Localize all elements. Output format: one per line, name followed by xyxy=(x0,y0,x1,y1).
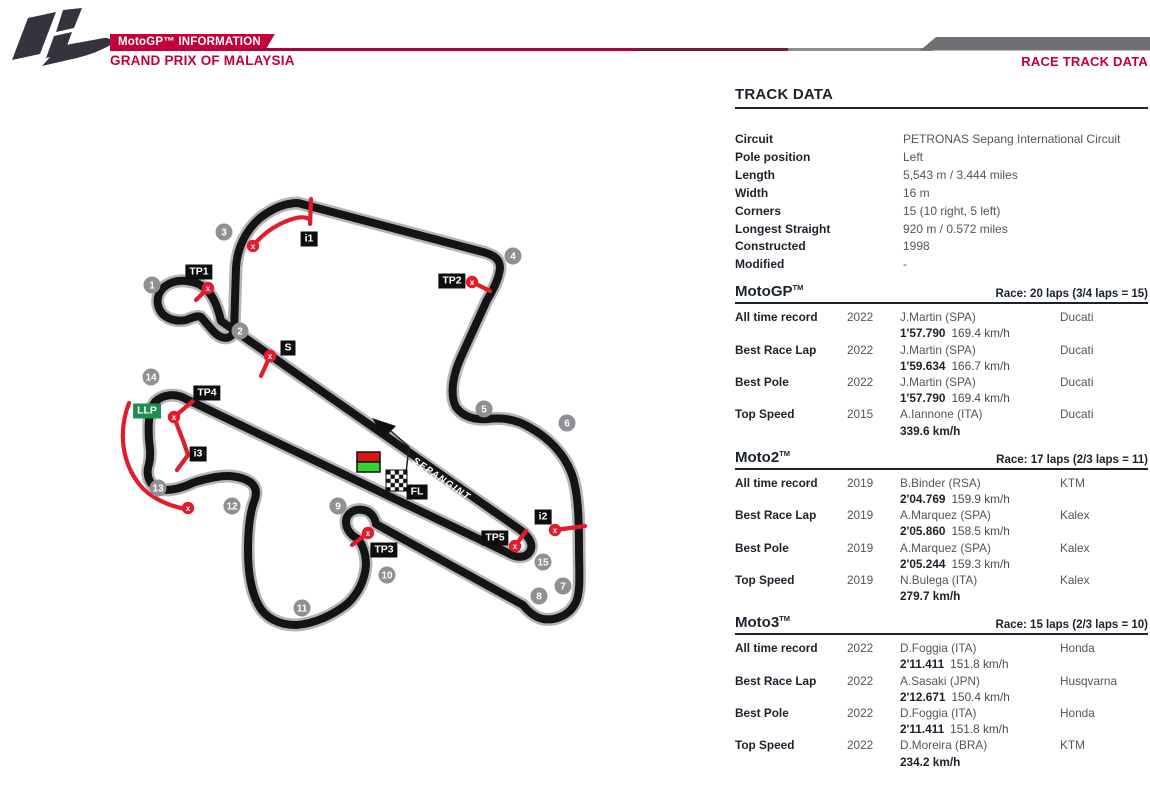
race-laps-info: Race: 17 laps (2/3 laps = 11) xyxy=(996,454,1148,466)
header-rule-maroon xyxy=(638,48,788,51)
track-data-label: Width xyxy=(735,185,903,203)
record-year: 2022 xyxy=(847,738,900,752)
track-data-row: Longest Straight920 m / 0.572 miles xyxy=(735,221,1148,239)
record-year: 2022 xyxy=(847,375,900,389)
record-speed: 339.6 km/h xyxy=(900,424,960,438)
track-data-row: CircuitPETRONAS Sepang International Cir… xyxy=(735,131,1148,149)
record-speed: 159.3 km/h xyxy=(951,557,1009,571)
track-data-row: Corners15 (10 right, 5 left) xyxy=(735,203,1148,221)
track-data-value: 1998 xyxy=(903,238,930,256)
records-table: All time record2022J.Martin (SPA)Ducati1… xyxy=(735,310,1148,440)
records-table: All time record2019B.Binder (RSA)KTM2'04… xyxy=(735,476,1148,606)
record-year: 2015 xyxy=(847,407,900,421)
record-year: 2022 xyxy=(847,310,900,324)
sector-x-glyph: x xyxy=(206,284,211,293)
record-rider: J.Martin (SPA) xyxy=(900,310,1060,324)
race-laps-info: Race: 15 laps (2/3 laps = 10) xyxy=(996,619,1148,631)
turn-number: 12 xyxy=(226,502,238,513)
record-row: All time record2022J.Martin (SPA)Ducati xyxy=(735,310,1148,326)
track-data-value: 5,543 m / 3.444 miles xyxy=(903,167,1018,185)
trademark: TM xyxy=(793,283,804,292)
record-rider: D.Foggia (ITA) xyxy=(900,706,1060,720)
track-data-value: 15 (10 right, 5 left) xyxy=(903,203,1000,221)
track-data-label: Pole position xyxy=(735,149,903,167)
record-label: Top Speed xyxy=(735,573,847,587)
record-speed: 151.8 km/h xyxy=(950,722,1008,736)
sector-x-glyph: x xyxy=(268,352,273,361)
record-bike: Ducati xyxy=(1060,407,1148,421)
track-data-label: Circuit xyxy=(735,131,903,149)
record-speed: 150.4 km/h xyxy=(951,690,1009,704)
record-lap-time: 2'11.411 xyxy=(900,722,944,736)
turn-number: 3 xyxy=(221,228,227,239)
record-bike: Ducati xyxy=(1060,343,1148,357)
map-label-tp2: TP2 xyxy=(438,274,465,289)
class-name: Moto3TM xyxy=(735,614,790,631)
record-label: Best Pole xyxy=(735,706,847,720)
record-bike: Honda xyxy=(1060,641,1148,655)
sector-x-glyph: x xyxy=(186,504,191,513)
record-rider: D.Foggia (ITA) xyxy=(900,641,1060,655)
track-data-label: Longest Straight xyxy=(735,221,903,239)
record-rider: D.Moreira (BRA) xyxy=(900,738,1060,752)
data-column: TRACK DATA CircuitPETRONAS Sepang Intern… xyxy=(735,86,1148,771)
sector-x-glyph: x xyxy=(513,542,518,551)
record-speed: 166.7 km/h xyxy=(951,359,1009,373)
record-row: Best Pole2022D.Foggia (ITA)Honda xyxy=(735,706,1148,722)
record-speed: 151.8 km/h xyxy=(950,657,1008,671)
track-data-row: Constructed1998 xyxy=(735,238,1148,256)
record-label: Top Speed xyxy=(735,738,847,752)
map-label-tp3: TP3 xyxy=(370,543,397,558)
record-rider: J.Martin (SPA) xyxy=(900,343,1060,357)
record-label: All time record xyxy=(735,641,847,655)
record-bike: KTM xyxy=(1060,738,1148,752)
record-rider: A.Marquez (SPA) xyxy=(900,541,1060,555)
record-bike: Honda xyxy=(1060,706,1148,720)
record-year: 2022 xyxy=(847,641,900,655)
record-value-row: 2'05.244159.3 km/h xyxy=(735,557,1148,573)
track-data-value: PETRONAS Sepang International Circuit xyxy=(903,131,1120,149)
class-section-moto2: Moto2TMRace: 17 laps (2/3 laps = 11)All … xyxy=(735,449,1148,606)
header-rule-red xyxy=(248,48,638,51)
turn-number: 13 xyxy=(152,484,164,495)
map-label-fl: FL xyxy=(407,485,428,500)
map-label-s: S xyxy=(280,341,295,356)
turn-number: 9 xyxy=(335,502,341,513)
map-label-tp1: TP1 xyxy=(185,265,212,280)
turn-number: 7 xyxy=(560,582,566,593)
record-lap-time: 1'57.790 xyxy=(900,391,945,405)
track-data-value: 920 m / 0.572 miles xyxy=(903,221,1008,239)
class-header: MotoGPTMRace: 20 laps (3/4 laps = 15) xyxy=(735,283,1148,304)
record-rider: B.Binder (RSA) xyxy=(900,476,1060,490)
map-label-i1: i1 xyxy=(301,232,318,247)
record-year: 2019 xyxy=(847,541,900,555)
record-lap-time: 2'05.860 xyxy=(900,524,945,538)
record-bike: KTM xyxy=(1060,476,1148,490)
class-section-motogp: MotoGPTMRace: 20 laps (3/4 laps = 15)All… xyxy=(735,283,1148,440)
record-value-row: 339.6 km/h xyxy=(735,424,1148,440)
record-row: Best Race Lap2019A.Marquez (SPA)Kalex xyxy=(735,508,1148,524)
turn-number: 5 xyxy=(481,405,487,416)
grand-prix-title: GRAND PRIX OF MALAYSIA xyxy=(110,53,295,68)
sector-x-glyph: x xyxy=(470,278,475,287)
track-data-value: - xyxy=(903,256,907,274)
class-name: MotoGPTM xyxy=(735,283,803,300)
record-bike: Kalex xyxy=(1060,541,1148,555)
turn-number: 1 xyxy=(149,281,155,292)
track-data-label: Length xyxy=(735,167,903,185)
record-row: Top Speed2022D.Moreira (BRA)KTM xyxy=(735,738,1148,754)
map-label-tp5: TP5 xyxy=(481,531,508,546)
trademark: TM xyxy=(779,449,790,458)
map-label-i2: i2 xyxy=(535,510,552,525)
map-label-tp4: TP4 xyxy=(193,386,220,401)
record-lap-time: 2'12.671 xyxy=(900,690,945,704)
record-lap-time: 1'59.634 xyxy=(900,359,945,373)
record-row: Best Pole2022J.Martin (SPA)Ducati xyxy=(735,375,1148,391)
trademark: TM xyxy=(779,614,790,623)
circuit-map: SEPANGINT xxxxxxxxx123456789101112131415… xyxy=(100,165,625,660)
track-data-row: Pole positionLeft xyxy=(735,149,1148,167)
turn-number: 14 xyxy=(145,373,157,384)
record-lap-time: 2'04.769 xyxy=(900,492,945,506)
class-header: Moto2TMRace: 17 laps (2/3 laps = 11) xyxy=(735,449,1148,470)
class-name: Moto2TM xyxy=(735,449,790,466)
record-label: Best Race Lap xyxy=(735,508,847,522)
record-value-row: 1'59.634166.7 km/h xyxy=(735,359,1148,375)
turn-number: 10 xyxy=(381,571,393,582)
record-year: 2022 xyxy=(847,706,900,720)
record-rider: A.Iannone (ITA) xyxy=(900,407,1060,421)
record-bike: Kalex xyxy=(1060,508,1148,522)
record-value-row: 2'11.411151.8 km/h xyxy=(735,722,1148,738)
record-year: 2019 xyxy=(847,476,900,490)
class-section-moto3: Moto3TMRace: 15 laps (2/3 laps = 10)All … xyxy=(735,614,1148,771)
record-value-row: 2'05.860158.5 km/h xyxy=(735,524,1148,540)
header-rule-gray xyxy=(788,48,933,51)
record-value-row: 234.2 km/h xyxy=(735,755,1148,771)
turn-number: 11 xyxy=(297,604,308,615)
record-row: Top Speed2019N.Bulega (ITA)Kalex xyxy=(735,573,1148,589)
sector-x-glyph: x xyxy=(172,413,177,422)
record-value-row: 1'57.790169.4 km/h xyxy=(735,326,1148,342)
record-year: 2022 xyxy=(847,343,900,357)
record-bike: Ducati xyxy=(1060,310,1148,324)
record-value-row: 2'04.769159.9 km/h xyxy=(735,492,1148,508)
track-data-value: Left xyxy=(903,149,923,167)
sector-x-glyph: x xyxy=(366,529,371,538)
record-label: Top Speed xyxy=(735,407,847,421)
record-bike: Ducati xyxy=(1060,375,1148,389)
record-speed: 169.4 km/h xyxy=(951,326,1009,340)
record-bike: Husqvarna xyxy=(1060,674,1148,688)
record-year: 2022 xyxy=(847,674,900,688)
record-rider: A.Sasaki (JPN) xyxy=(900,674,1060,688)
record-speed: 234.2 km/h xyxy=(900,755,960,769)
sector-x-glyph: x xyxy=(553,526,558,535)
track-data-label: Constructed xyxy=(735,238,903,256)
motogp-logo xyxy=(8,8,113,80)
record-year: 2019 xyxy=(847,573,900,587)
record-row: All time record2022D.Foggia (ITA)Honda xyxy=(735,641,1148,657)
records-table: All time record2022D.Foggia (ITA)Honda2'… xyxy=(735,641,1148,771)
track-data-label: Corners xyxy=(735,203,903,221)
record-lap-time: 1'57.790 xyxy=(900,326,945,340)
track-data-row: Modified- xyxy=(735,256,1148,274)
record-speed: 169.4 km/h xyxy=(951,391,1009,405)
sector-x-glyph: x xyxy=(251,242,256,251)
map-label-llp: LLP xyxy=(133,404,161,419)
track-data-row: Length5,543 m / 3.444 miles xyxy=(735,167,1148,185)
record-speed: 158.5 km/h xyxy=(951,524,1009,538)
turn-number: 15 xyxy=(537,558,549,569)
record-bike: Kalex xyxy=(1060,573,1148,587)
map-label-i3: i3 xyxy=(190,447,207,462)
turn-number: 6 xyxy=(564,419,570,430)
record-value-row: 279.7 km/h xyxy=(735,589,1148,605)
turn-number: 2 xyxy=(237,327,243,338)
track-data-label: Modified xyxy=(735,256,903,274)
red-green-flag-icon xyxy=(357,452,380,472)
record-label: Best Race Lap xyxy=(735,674,847,688)
track-data-title: TRACK DATA xyxy=(735,86,1148,109)
race-laps-info: Race: 20 laps (3/4 laps = 15) xyxy=(996,288,1148,300)
record-rider: N.Bulega (ITA) xyxy=(900,573,1060,587)
record-speed: 279.7 km/h xyxy=(900,589,960,603)
record-label: All time record xyxy=(735,310,847,324)
class-header: Moto3TMRace: 15 laps (2/3 laps = 10) xyxy=(735,614,1148,635)
track-data-table: CircuitPETRONAS Sepang International Cir… xyxy=(735,131,1148,274)
record-row: Best Pole2019A.Marquez (SPA)Kalex xyxy=(735,541,1148,557)
record-value-row: 1'57.790169.4 km/h xyxy=(735,391,1148,407)
turn-number: 8 xyxy=(536,592,542,603)
record-label: Best Race Lap xyxy=(735,343,847,357)
record-label: Best Pole xyxy=(735,375,847,389)
record-lap-time: 2'05.244 xyxy=(900,557,945,571)
record-speed: 159.9 km/h xyxy=(951,492,1009,506)
checkered-flag-icon xyxy=(386,470,407,491)
header-gray-bar xyxy=(920,37,1150,51)
page-title: RACE TRACK DATA xyxy=(1021,54,1148,69)
record-row: All time record2019B.Binder (RSA)KTM xyxy=(735,476,1148,492)
record-label: Best Pole xyxy=(735,541,847,555)
record-label: All time record xyxy=(735,476,847,490)
track-data-row: Width16 m xyxy=(735,185,1148,203)
track-data-value: 16 m xyxy=(903,185,930,203)
record-lap-time: 2'11.411 xyxy=(900,657,944,671)
brand-text: MotoGP™ INFORMATION xyxy=(118,36,261,48)
record-year: 2019 xyxy=(847,508,900,522)
record-rider: A.Marquez (SPA) xyxy=(900,508,1060,522)
record-value-row: 2'11.411151.8 km/h xyxy=(735,657,1148,673)
record-row: Top Speed2015A.Iannone (ITA)Ducati xyxy=(735,407,1148,423)
record-row: Best Race Lap2022A.Sasaki (JPN)Husqvarna xyxy=(735,674,1148,690)
record-row: Best Race Lap2022J.Martin (SPA)Ducati xyxy=(735,343,1148,359)
circuit-map-svg: SEPANGINT xxxxxxxxx123456789101112131415 xyxy=(100,165,625,660)
record-rider: J.Martin (SPA) xyxy=(900,375,1060,389)
record-value-row: 2'12.671150.4 km/h xyxy=(735,690,1148,706)
turn-number: 4 xyxy=(510,252,516,263)
